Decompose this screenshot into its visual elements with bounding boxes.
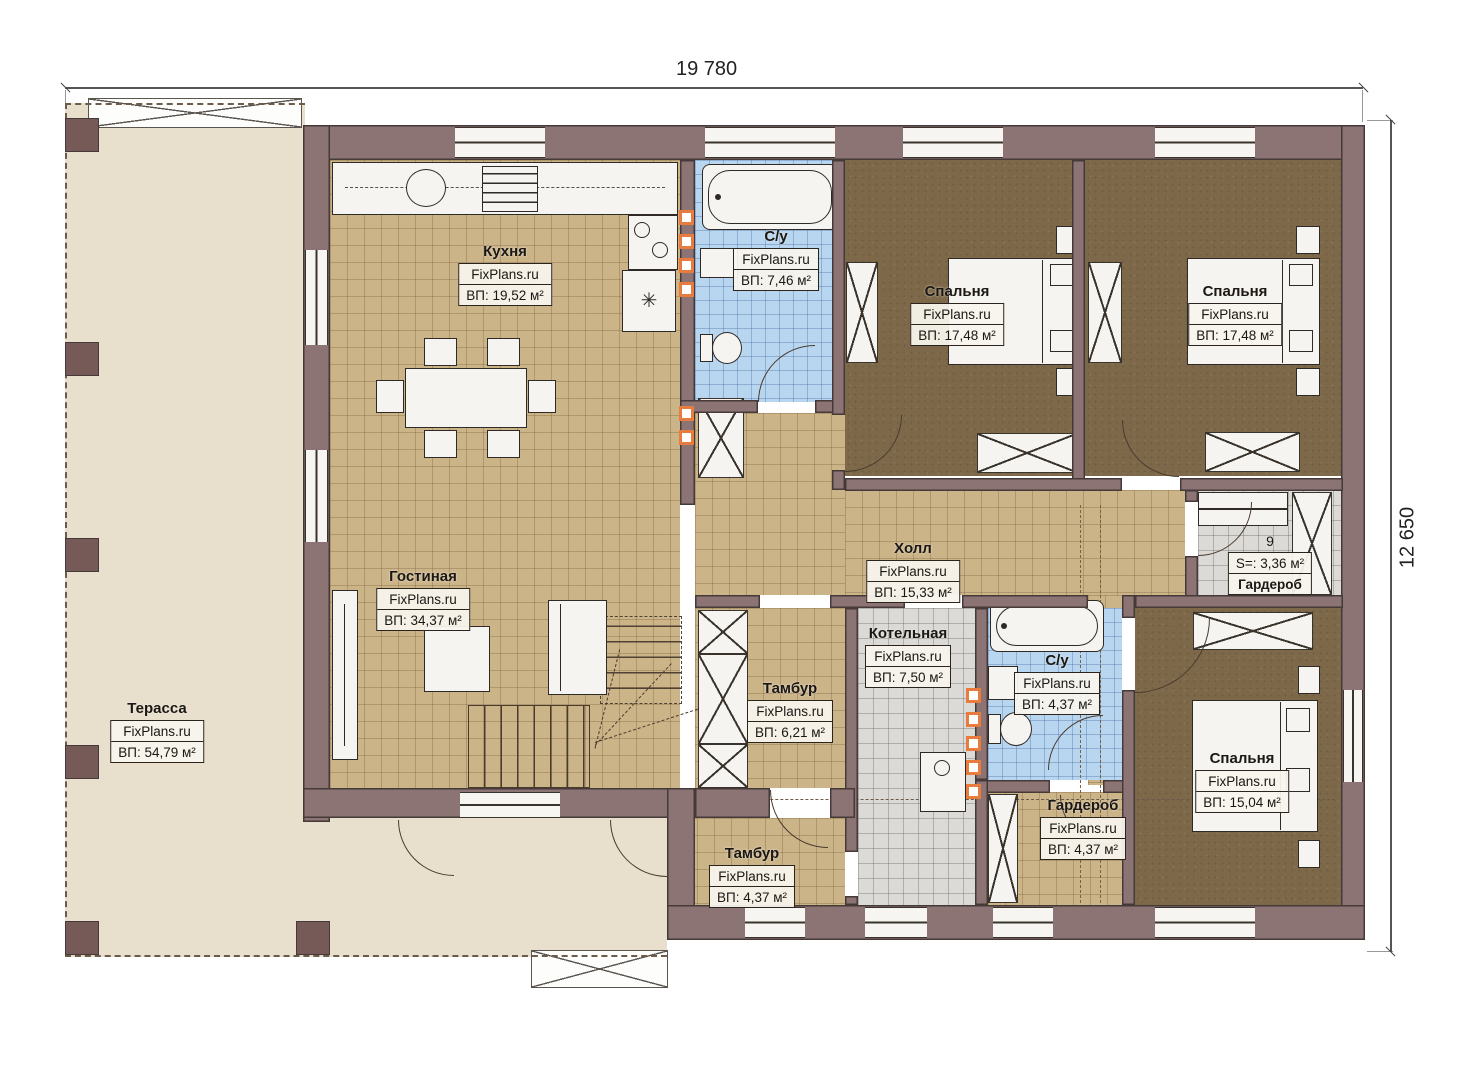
room-area: ВП: 34,37 м² (377, 609, 469, 630)
wall-segment (845, 478, 1122, 491)
window (305, 250, 328, 345)
floor-plan: 19 780 12 650 ✳ (0, 0, 1473, 1080)
nightstand (1298, 666, 1320, 694)
toilet (1000, 712, 1032, 746)
watermark: FixPlans.ru (1041, 818, 1125, 838)
room-label-bedroom1: Спальня FixPlans.ruВП: 17,48 м² (910, 283, 1004, 346)
pillow (1050, 330, 1074, 352)
kitchen-sink (406, 169, 446, 207)
wall-segment (1135, 595, 1343, 608)
staircase-upper-flight (600, 616, 682, 704)
room-label-bedroom2: Спальня FixPlans.ruВП: 17,48 м² (1188, 283, 1282, 346)
wardrobe-symbol (988, 794, 1018, 903)
wall-segment (1185, 490, 1198, 502)
wall-segment (1341, 125, 1365, 940)
riser-shaft (966, 712, 981, 727)
room-area: ВП: 7,50 м² (866, 666, 950, 687)
nightstand (1296, 226, 1320, 254)
riser-shaft (679, 282, 694, 297)
wardrobe-symbol (698, 610, 748, 654)
room-number: 9 (1228, 533, 1312, 549)
room-area: ВП: 15,04 м² (1196, 791, 1288, 812)
riser-shaft (966, 760, 981, 775)
wall-segment (695, 788, 770, 818)
window (705, 127, 835, 158)
riser-shaft (679, 406, 694, 421)
window (455, 127, 545, 158)
room-area: ВП: 54,79 м² (111, 741, 203, 762)
room-label-boiler: Котельная FixPlans.ruВП: 7,50 м² (865, 625, 951, 688)
bed-line (1282, 260, 1283, 363)
pillow (1286, 768, 1310, 792)
watermark: FixPlans.ru (866, 646, 950, 666)
terrace-post (65, 538, 99, 572)
watermark: FixPlans.ru (377, 589, 469, 609)
room-area: ВП: 15,33 м² (867, 581, 959, 602)
staircase-lower-flight (468, 705, 590, 788)
room-area: ВП: 7,46 м² (734, 269, 818, 290)
riser-shaft (679, 258, 694, 273)
wall-segment (845, 896, 858, 905)
riser-shaft (679, 234, 694, 249)
pillow (1050, 264, 1074, 286)
wall-segment (962, 595, 1088, 608)
watermark: FixPlans.ru (734, 249, 818, 269)
room-name: Гардероб (1229, 573, 1311, 594)
room-label-living: Гостиная FixPlans.ruВП: 34,37 м² (376, 568, 470, 631)
terrace-post (65, 118, 99, 152)
wall-segment (695, 595, 760, 608)
room-area: ВП: 4,37 м² (1041, 838, 1125, 859)
room-area: ВП: 17,48 м² (911, 324, 1003, 345)
room-area: ВП: 19,52 м² (459, 284, 551, 305)
wardrobe-symbol (698, 654, 748, 744)
riser-shaft (679, 430, 694, 445)
room-label-wardrobe9: 9 S=: 3,36 м²Гардероб (1228, 533, 1312, 595)
watermark: FixPlans.ru (710, 866, 794, 886)
terrace-edge (65, 103, 67, 957)
pillow (1289, 264, 1313, 286)
coffee-table (424, 626, 490, 692)
sofa-back (560, 604, 561, 691)
burner (652, 242, 668, 258)
dining-table (405, 368, 527, 428)
nightstand (1298, 840, 1320, 868)
wardrobe-symbol (846, 262, 878, 363)
width-dimension-label: 19 780 (676, 58, 737, 81)
chair (487, 430, 520, 458)
wall-segment (1122, 595, 1135, 618)
burner (634, 222, 650, 238)
room-area: S=: 3,36 м² (1229, 553, 1311, 573)
tv-cabinet (332, 590, 358, 760)
riser-shaft (966, 688, 981, 703)
watermark: FixPlans.ru (748, 701, 832, 721)
chair (424, 430, 457, 458)
room-label-vestibule1: Тамбур FixPlans.ruВП: 6,21 м² (747, 680, 833, 743)
room-label-bathroom2: С/у FixPlans.ruВП: 4,37 м² (1014, 652, 1100, 715)
wardrobe-symbol (1193, 612, 1313, 650)
room-area: ВП: 17,48 м² (1189, 324, 1281, 345)
room-label-kitchen: Кухня FixPlans.ruВП: 19,52 м² (458, 243, 552, 306)
watermark: FixPlans.ru (111, 721, 203, 741)
watermark: FixPlans.ru (1015, 673, 1099, 693)
watermark: FixPlans.ru (867, 561, 959, 581)
wardrobe-symbol (1205, 432, 1300, 472)
room-label-hall: Холл FixPlans.ruВП: 15,33 м² (866, 540, 960, 603)
height-dimension-line (1390, 120, 1392, 952)
watermark: FixPlans.ru (1189, 304, 1281, 324)
chair (424, 338, 457, 366)
room-label-terrace: Терасса FixPlans.ruВП: 54,79 м² (110, 700, 204, 763)
window (460, 792, 560, 818)
fridge: ✳ (622, 270, 676, 332)
terrace-post (296, 921, 330, 955)
width-dimension-line (65, 87, 1363, 89)
wall-segment (1180, 478, 1343, 491)
wardrobe-symbol (698, 744, 748, 788)
chair (528, 380, 556, 413)
window (993, 907, 1053, 938)
terrace-edge (65, 955, 667, 957)
bed-line (1042, 260, 1043, 363)
room-label-bathroom1: С/у FixPlans.ruВП: 7,46 м² (733, 228, 819, 291)
height-dimension-label: 12 650 (1397, 488, 1420, 588)
window (865, 907, 927, 938)
pillow (1286, 708, 1310, 732)
pillow (1289, 330, 1313, 352)
wall-segment (832, 470, 845, 490)
kitchen-stove (482, 166, 538, 212)
watermark: FixPlans.ru (459, 264, 551, 284)
sofa (548, 600, 607, 695)
terrace-floor (65, 103, 305, 957)
room-label-vestibule2: Тамбур FixPlans.ruВП: 4,37 м² (709, 845, 795, 908)
room-area: ВП: 4,37 м² (1015, 693, 1099, 714)
terrace-post (65, 921, 99, 955)
window (1343, 690, 1363, 782)
riser-shaft (679, 210, 694, 225)
nightstand (1296, 368, 1320, 396)
tv-panel (344, 604, 345, 746)
chair (487, 338, 520, 366)
terrace-edge (65, 103, 305, 105)
window (903, 127, 1003, 158)
watermark: FixPlans.ru (1196, 771, 1288, 791)
wall-segment (1072, 160, 1085, 490)
room-label-bedroom3: Спальня FixPlans.ruВП: 15,04 м² (1195, 750, 1289, 813)
window (1155, 127, 1255, 158)
wardrobe-symbol (977, 433, 1077, 473)
dimension-guide (1362, 90, 1363, 122)
window (1155, 907, 1255, 938)
bathtub (702, 164, 838, 230)
terrace-post (65, 745, 99, 779)
window (305, 450, 328, 542)
boiler-dial (934, 760, 950, 776)
room-label-wardrobe4: Гардероб FixPlans.ruВП: 4,37 м² (1040, 797, 1126, 860)
watermark: FixPlans.ru (911, 304, 1003, 324)
riser-shaft (966, 736, 981, 751)
window (745, 907, 805, 938)
room-area: ВП: 6,21 м² (748, 721, 832, 742)
wall-segment (830, 788, 855, 818)
room-area: ВП: 4,37 м² (710, 886, 794, 907)
chair (376, 380, 404, 413)
riser-shaft (966, 784, 981, 799)
wall-segment (832, 160, 845, 415)
wardrobe-symbol (1088, 262, 1122, 363)
toilet (712, 332, 742, 364)
terrace-post (65, 342, 99, 376)
